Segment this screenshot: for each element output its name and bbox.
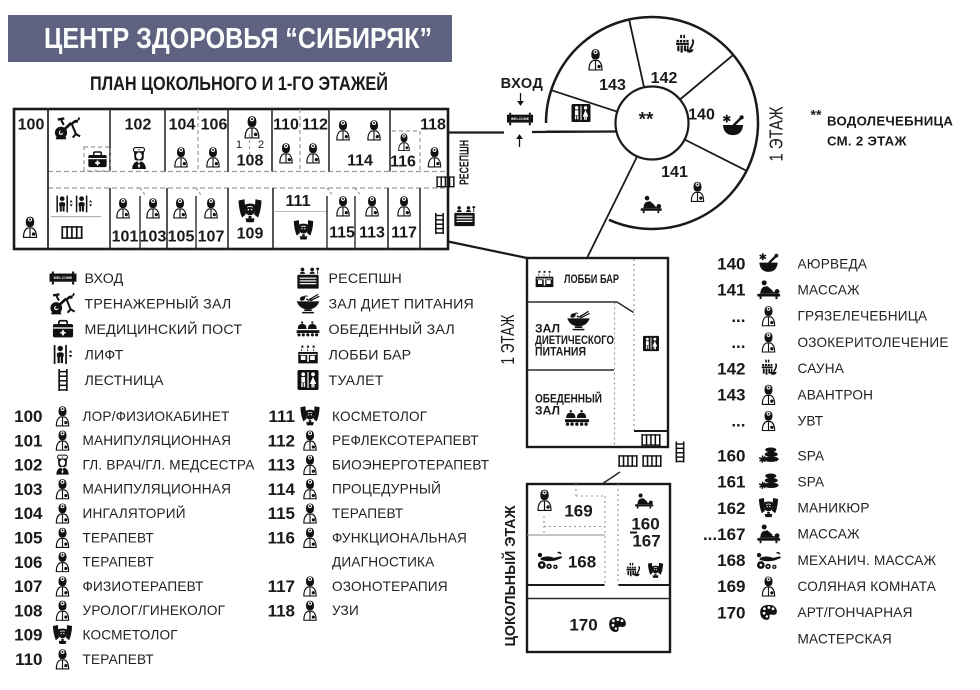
svg-text:104: 104 [14,504,43,523]
svg-text:114: 114 [268,480,296,499]
svg-text:ЦЕНТР ЗДОРОВЬЯ “СИБИРЯК”: ЦЕНТР ЗДОРОВЬЯ “СИБИРЯК” [44,23,432,55]
svg-text:105: 105 [14,528,42,547]
svg-text:СОЛЯНАЯ КОМНАТА: СОЛЯНАЯ КОМНАТА [798,579,937,594]
svg-text:МАНИКЮР: МАНИКЮР [798,501,870,516]
svg-text:140: 140 [717,254,745,273]
svg-text:100: 100 [18,117,45,134]
svg-text:117: 117 [268,577,295,596]
svg-text:106: 106 [14,553,42,572]
svg-text:МЕХАНИЧ. МАССАЖ: МЕХАНИЧ. МАССАЖ [798,553,937,568]
svg-text:167: 167 [632,531,660,550]
svg-text:ТЕРАПЕВТ: ТЕРАПЕВТ [83,652,154,667]
svg-text:...167: ...167 [703,525,746,544]
svg-text:ЛЕСТНИЦА: ЛЕСТНИЦА [85,373,165,389]
svg-text:ТЕРАПЕВТ: ТЕРАПЕВТ [83,555,154,570]
svg-text:110: 110 [15,650,42,669]
svg-text:114: 114 [347,153,373,170]
svg-text:109: 109 [14,626,42,645]
svg-text:169: 169 [564,501,592,520]
svg-text:161: 161 [717,473,745,492]
svg-text:143: 143 [717,385,745,404]
svg-text:112: 112 [302,117,328,134]
svg-text:107: 107 [14,577,42,596]
svg-text:РЕСЕПШН: РЕСЕПШН [329,271,402,287]
svg-text:...: ... [731,412,745,431]
svg-text:ТРЕНАЖЕРНЫЙ ЗАЛ: ТРЕНАЖЕРНЫЙ ЗАЛ [85,294,232,312]
svg-text:1 ЭТАЖ: 1 ЭТАЖ [765,107,786,162]
svg-text:**: ** [639,110,654,131]
svg-text:ЛИФТ: ЛИФТ [85,347,124,363]
svg-text:УРОЛОГ/ГИНЕКОЛОГ: УРОЛОГ/ГИНЕКОЛОГ [83,603,226,618]
svg-text:141: 141 [717,281,745,300]
svg-text:САУНА: САУНА [798,361,845,376]
svg-text:168: 168 [568,552,596,571]
svg-text:103: 103 [140,229,167,246]
svg-text:...: ... [731,307,745,326]
svg-text:ВХОД: ВХОД [85,271,124,287]
svg-text:ИНГАЛЯТОРИЙ: ИНГАЛЯТОРИЙ [83,506,186,521]
svg-text:РЕФЛЕКСОТЕРАПЕВТ: РЕФЛЕКСОТЕРАПЕВТ [332,433,479,448]
svg-text:168: 168 [717,551,745,570]
svg-text:SPA: SPA [798,474,826,489]
svg-text:АЮРВЕДА: АЮРВЕДА [798,256,868,271]
svg-text:106: 106 [201,117,228,134]
svg-text:142: 142 [717,359,745,378]
svg-text:101: 101 [112,229,139,246]
svg-text:ЗАЛ ДИЕТ ПИТАНИЯ: ЗАЛ ДИЕТ ПИТАНИЯ [329,296,474,312]
svg-text:115: 115 [268,504,295,523]
svg-text:113: 113 [359,225,385,242]
svg-text:ФИЗИОТЕРАПЕВТ: ФИЗИОТЕРАПЕВТ [83,579,204,594]
svg-text:ЗАЛ: ЗАЛ [535,404,560,418]
svg-text:1 ЭТАЖ: 1 ЭТАЖ [498,314,518,364]
svg-text:170: 170 [717,603,745,622]
svg-text:117: 117 [391,225,417,242]
svg-text:ВОДОЛЕЧЕБНИЦА: ВОДОЛЕЧЕБНИЦА [827,114,953,129]
svg-text:170: 170 [569,616,597,635]
svg-text:142: 142 [651,70,678,87]
svg-text:ЛОББИ БАР: ЛОББИ БАР [329,347,412,363]
svg-text:ТУАЛЕТ: ТУАЛЕТ [329,373,384,389]
svg-text:143: 143 [599,77,626,94]
svg-text:110: 110 [273,117,299,134]
svg-text:160: 160 [717,446,745,465]
svg-text:ГРЯЗЕЛЕЧЕБНИЦА: ГРЯЗЕЛЕЧЕБНИЦА [798,309,929,324]
svg-text:111: 111 [286,193,311,210]
svg-text:169: 169 [717,577,745,596]
svg-text:108: 108 [14,601,42,620]
svg-text:УЗИ: УЗИ [332,603,359,618]
svg-text:СМ. 2 ЭТАЖ: СМ. 2 ЭТАЖ [827,134,907,149]
svg-text:МАССАЖ: МАССАЖ [798,282,860,297]
svg-text:2: 2 [258,139,264,151]
svg-text:ОЗОКЕРИТОЛЕЧЕНИЕ: ОЗОКЕРИТОЛЕЧЕНИЕ [798,335,949,350]
svg-text:МАСТЕРСКАЯ: МАСТЕРСКАЯ [798,631,892,646]
svg-text:ВХОД: ВХОД [501,76,544,92]
svg-text:112: 112 [268,431,295,450]
svg-text:МЕДИЦИНСКИЙ ПОСТ: МЕДИЦИНСКИЙ ПОСТ [85,320,243,338]
svg-text:1: 1 [236,139,242,151]
svg-text:ПЛАН ЦОКОЛЬНОГО И 1-ГО ЭТАЖЕЙ: ПЛАН ЦОКОЛЬНОГО И 1-ГО ЭТАЖЕЙ [90,73,388,95]
svg-text:ГЛ. ВРАЧ/ГЛ. МЕДСЕСТРА: ГЛ. ВРАЧ/ГЛ. МЕДСЕСТРА [83,457,256,472]
svg-text:МАНИПУЛЯЦИОННАЯ: МАНИПУЛЯЦИОННАЯ [83,482,232,497]
svg-text:ТЕРАПЕВТ: ТЕРАПЕВТ [332,506,403,521]
svg-text:141: 141 [661,164,688,181]
svg-text:102: 102 [125,117,152,134]
svg-text:МАНИПУЛЯЦИОННАЯ: МАНИПУЛЯЦИОННАЯ [83,433,232,448]
svg-text:РЕСЕПШН: РЕСЕПШН [457,140,471,185]
svg-text:КОСМЕТОЛОГ: КОСМЕТОЛОГ [332,409,428,424]
svg-text:ДИАГНОСТИКА: ДИАГНОСТИКА [332,555,435,570]
svg-text:115: 115 [329,225,355,242]
svg-text:...: ... [731,333,745,352]
svg-text:105: 105 [168,229,195,246]
svg-text:ФУНКЦИОНАЛЬНАЯ: ФУНКЦИОНАЛЬНАЯ [332,530,467,545]
svg-text:109: 109 [237,226,264,243]
svg-text:БИОЭНЕРГОТЕРАПЕВТ: БИОЭНЕРГОТЕРАПЕВТ [332,457,489,472]
svg-text:100: 100 [14,407,42,426]
svg-text:УВТ: УВТ [798,413,824,428]
svg-text:ОЗОНОТЕРАПИЯ: ОЗОНОТЕРАПИЯ [332,579,448,594]
svg-text:108: 108 [237,153,264,170]
svg-text:162: 162 [717,499,745,518]
svg-text:МАССАЖ: МАССАЖ [798,527,860,542]
svg-text:140: 140 [688,107,715,124]
svg-text:118: 118 [268,601,295,620]
svg-text:102: 102 [14,456,42,475]
svg-text:116: 116 [268,528,295,547]
svg-text:113: 113 [268,456,295,475]
svg-text:ЛОББИ БАР: ЛОББИ БАР [564,272,619,286]
svg-text:КОСМЕТОЛОГ: КОСМЕТОЛОГ [83,627,179,642]
svg-text:104: 104 [169,117,196,134]
svg-text:ПИТАНИЯ: ПИТАНИЯ [535,344,586,358]
svg-text:**: ** [811,106,822,122]
svg-text:ЦОКОЛЬНЫЙ ЭТАЖ: ЦОКОЛЬНЫЙ ЭТАЖ [501,505,519,647]
svg-text:АРТ/ГОНЧАРНАЯ: АРТ/ГОНЧАРНАЯ [798,605,913,620]
svg-text:111: 111 [269,407,296,426]
svg-text:101: 101 [14,431,42,450]
svg-text:SPA: SPA [798,448,826,463]
svg-text:107: 107 [198,229,225,246]
svg-text:ЛОР/ФИЗИОКАБИНЕТ: ЛОР/ФИЗИОКАБИНЕТ [83,409,230,424]
svg-text:ОБЕДЕННЫЙ ЗАЛ: ОБЕДЕННЫЙ ЗАЛ [329,320,455,338]
svg-text:103: 103 [14,480,42,499]
svg-text:ПРОЦЕДУРНЫЙ: ПРОЦЕДУРНЫЙ [332,482,441,497]
svg-text:116: 116 [390,154,416,171]
svg-text:118: 118 [420,117,446,134]
svg-text:АВАНТРОН: АВАНТРОН [798,387,874,402]
svg-text:ТЕРАПЕВТ: ТЕРАПЕВТ [83,530,154,545]
